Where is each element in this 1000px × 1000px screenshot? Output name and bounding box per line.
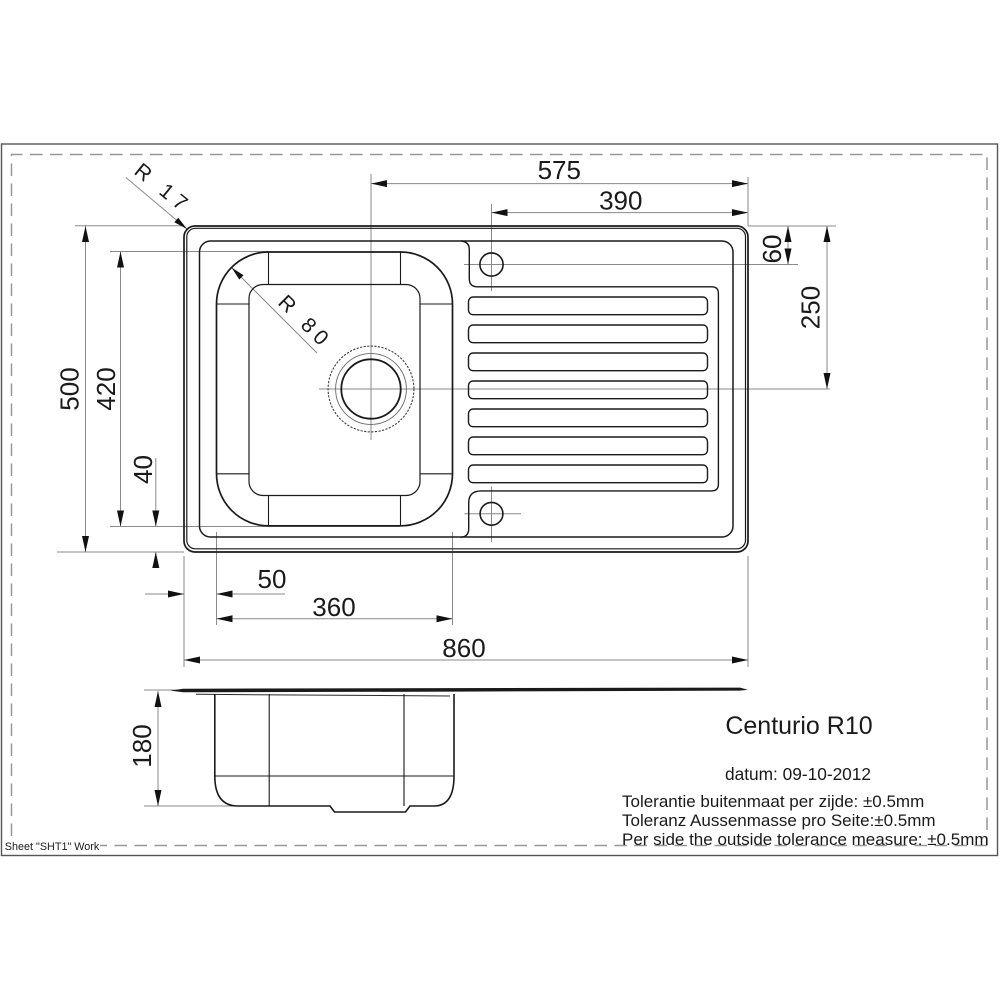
svg-text:860: 860 xyxy=(442,633,485,663)
svg-text:360: 360 xyxy=(312,592,355,622)
svg-text:390: 390 xyxy=(599,186,642,216)
svg-text:180: 180 xyxy=(127,724,157,767)
svg-text:250: 250 xyxy=(796,286,826,329)
svg-text:Per side the outside tolerance: Per side the outside tolerance measure: … xyxy=(622,830,989,849)
svg-text:Toleranz Aussenmasse pro Seite: Toleranz Aussenmasse pro Seite:±0.5mm xyxy=(622,811,936,830)
svg-text:Centurio R10: Centurio R10 xyxy=(725,712,872,740)
svg-text:datum: 09-10-2012: datum: 09-10-2012 xyxy=(725,764,871,784)
svg-text:575: 575 xyxy=(538,155,581,185)
svg-text:420: 420 xyxy=(91,367,121,410)
svg-text:50: 50 xyxy=(258,564,287,594)
svg-text:40: 40 xyxy=(128,455,158,484)
svg-text:Sheet "SHT1" Work: Sheet "SHT1" Work xyxy=(5,841,100,853)
svg-text:Tolerantie buitenmaat per zijd: Tolerantie buitenmaat per zijde: ±0.5mm xyxy=(622,792,924,811)
svg-text:500: 500 xyxy=(55,367,85,410)
svg-text:60: 60 xyxy=(757,235,787,264)
